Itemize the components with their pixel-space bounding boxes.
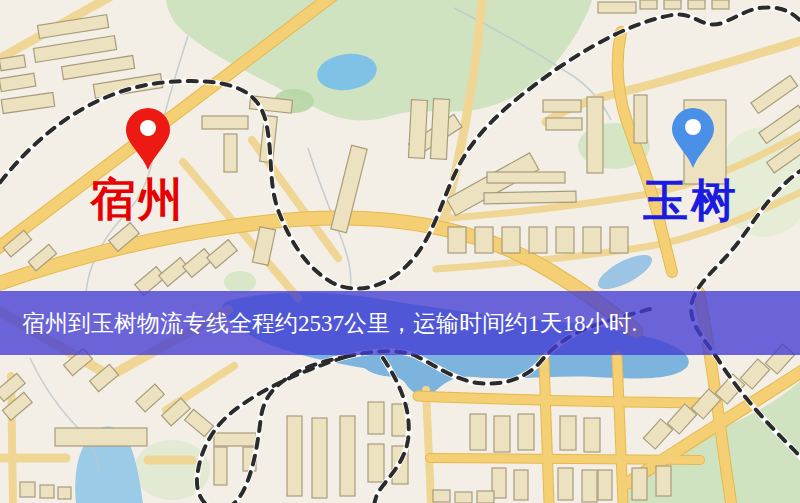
origin-pin-icon[interactable] (124, 106, 172, 176)
destination-pin-icon[interactable] (670, 105, 716, 174)
origin-city-label: 宿州 (90, 178, 186, 223)
map-artwork (0, 0, 800, 503)
route-banner-text: 宿州到玉树物流专线全程约2537公里，运输时间约1天18小时. (0, 308, 637, 339)
map-canvas[interactable]: 宿州 玉树 宿州到玉树物流专线全程约2537公里，运输时间约1天18小时. (0, 0, 800, 503)
destination-city-label: 玉树 (643, 179, 739, 224)
route-banner: 宿州到玉树物流专线全程约2537公里，运输时间约1天18小时. (0, 291, 800, 355)
